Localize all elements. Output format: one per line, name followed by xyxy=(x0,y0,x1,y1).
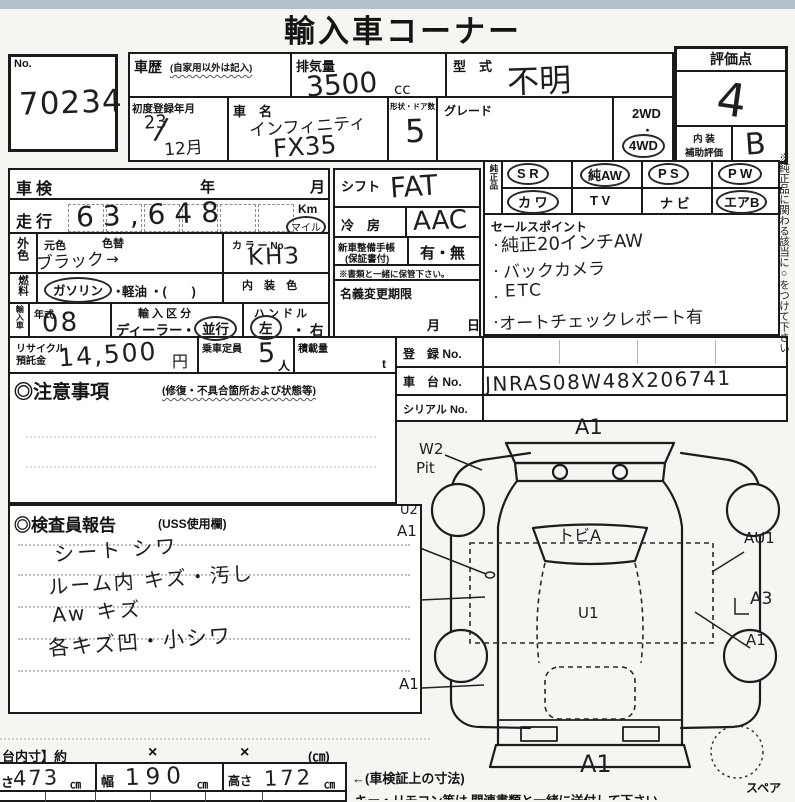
model-code-label: 型 式 xyxy=(453,56,492,75)
service-book-box: 新車整備手帳 (保証書付) 有・無 xyxy=(333,236,481,266)
registration-label-divider xyxy=(482,338,484,420)
right-taillight xyxy=(623,727,659,741)
height-box: 高さ 172 ㎝ xyxy=(222,762,347,792)
doors-label: 形状・ドア数 xyxy=(390,101,435,112)
interior-color-label: 内 装 色 xyxy=(242,277,301,293)
equip-ps: P S xyxy=(658,166,679,181)
equip-aw: 純AW xyxy=(588,168,622,183)
recycle-divider1 xyxy=(197,338,199,372)
color-label: 外色 xyxy=(16,237,29,261)
import-label: 輸入車 xyxy=(15,305,23,329)
history-box: 車歴 (自家用以外は記入) xyxy=(128,52,292,100)
fuel-row: 燃料 ガソリン ・ 軽油 ・( ) 内 装 色 xyxy=(8,272,330,304)
bottom-cut-divider xyxy=(205,792,206,802)
cautions-note: (修復・不具合箇所および状態等) xyxy=(162,383,316,398)
registration-row-divider xyxy=(397,394,786,396)
dims-x1: × xyxy=(148,744,157,762)
interior-grade-label2: 補助評価 xyxy=(677,145,731,159)
shaken-month: 月 xyxy=(310,176,325,197)
import-labelcell: 輸入車 xyxy=(10,304,30,336)
load-label: 積載量 xyxy=(298,340,328,355)
body-right-edge xyxy=(663,481,682,745)
height-label: 高さ xyxy=(228,772,252,789)
ac-label: 冷 房 xyxy=(341,215,380,234)
shift-label: シフト xyxy=(341,176,380,195)
color-arrow: → xyxy=(106,250,119,268)
service-book-divider xyxy=(407,238,409,264)
equipment-label: 純正品 xyxy=(489,164,498,190)
fuel-labelcell: 燃料 xyxy=(10,274,38,302)
diagram-label-u2: U2 xyxy=(400,503,418,518)
transfer-label: 名義変更期限 xyxy=(340,285,412,302)
displacement-value: 3500 xyxy=(305,66,378,104)
recycle-divider2 xyxy=(293,338,295,372)
fuel-diesel: 軽油 xyxy=(122,281,147,300)
doors-dashed-rect xyxy=(470,543,713,643)
first-reg-month: 12月 xyxy=(163,133,203,161)
load-unit: t xyxy=(382,357,386,371)
recycle-label2: 預託金 xyxy=(16,352,46,367)
mileage-row: 走行 63,648 Km マイル xyxy=(8,198,330,234)
length-value: 473 xyxy=(13,765,60,791)
interior-dashed-right xyxy=(635,563,643,663)
import-parallel-ring: 並行 xyxy=(194,316,237,341)
diagram-label-a3: A3 xyxy=(750,589,772,609)
faint-ruling xyxy=(0,738,430,740)
diagram-label-w2: W2 xyxy=(419,440,443,458)
equip-sr: S R xyxy=(517,166,539,181)
color-no-value: KH3 xyxy=(248,243,302,271)
displacement-box: 排気量 3500 cc xyxy=(290,52,447,100)
mileage-km: Km xyxy=(298,202,317,216)
a1-left-pointer-line xyxy=(420,597,485,600)
grade-label: グレード xyxy=(444,102,492,119)
a3-bracket xyxy=(735,598,749,614)
score-value: 4 xyxy=(713,71,750,129)
front-grille xyxy=(515,463,665,481)
mileage-label: 走行 xyxy=(16,208,56,232)
diagram-label-au1: AU1 xyxy=(744,529,775,547)
diagram-label-rear: A1 xyxy=(580,750,612,778)
color-divider xyxy=(222,234,224,272)
fuel-gasoline: ガソリン xyxy=(53,284,103,298)
equipment-col-divider xyxy=(571,162,573,213)
rear-window-dashed xyxy=(545,667,635,719)
score-label: 評価点 xyxy=(710,51,752,67)
score-header: 評価点 xyxy=(677,49,785,72)
sales-point: バックカメラ xyxy=(503,254,606,283)
handle-left: 左 xyxy=(259,321,273,336)
cautions-title: ◎注意事項 xyxy=(14,377,109,404)
diagram-label-a1-right: A1 xyxy=(746,631,766,649)
equip-kawa: カ ワ xyxy=(518,195,548,210)
equip-ps-ring: P S xyxy=(648,163,689,185)
diagram-label-pit: Pit xyxy=(416,459,435,477)
history-note: (自家用以外は記入) xyxy=(170,60,252,74)
registration-box: 登 録 No. 車 台 No. JNRAS08W48X206741 シリアル N… xyxy=(395,336,788,422)
spare-tire-circle xyxy=(711,726,763,778)
transfer-day: 日 xyxy=(467,315,480,334)
width-value: 190 xyxy=(125,763,188,791)
lot-no-label: No. xyxy=(14,58,32,70)
grade-box: グレード xyxy=(436,96,614,162)
base-color-value: ブラック xyxy=(35,245,105,275)
transfer-month: 月 xyxy=(427,315,440,334)
recycle-value: 14,500 xyxy=(57,337,158,373)
color-row: 外色 元色 色替 カ ラ ー No. ブラック → KH3 xyxy=(8,232,330,274)
u2-pointer-line xyxy=(420,548,486,574)
shaken-row: 車検 年 月 xyxy=(8,168,330,200)
history-label: 車歴 xyxy=(134,57,162,77)
import-row: 輸入車 年式 08 輸 入 区 分 ディーラー ・ 並行 ハ ン ド ル 左 ・… xyxy=(8,302,330,338)
sales-points-box: セールスポイント ・ 純正20インチAW ・ バックカメラ ・ ETC ・ オー… xyxy=(483,213,780,336)
equip-aw-ring: 純AW xyxy=(580,163,630,187)
interior-grade-row: 内 装 補助評価 B xyxy=(677,125,785,163)
reg-no-label: 登 録 No. xyxy=(403,345,462,362)
equipment-grid: 純正品 S R 純AW P S P W カ ワ T V ナ ビ エアB xyxy=(483,160,780,215)
shaken-label: 車検 xyxy=(16,175,56,199)
drive-4wd-ring: 4WD xyxy=(622,134,665,158)
reg-no-subcell xyxy=(715,340,716,364)
car-name-line2: FX35 xyxy=(272,130,337,163)
cautions-ruling xyxy=(26,436,376,438)
equip-airbag: エアB xyxy=(724,195,759,210)
equipment-col-divider xyxy=(711,162,713,213)
left-taillight xyxy=(521,727,557,741)
import-divider2 xyxy=(242,304,244,336)
length-box: さ 473 ㎝ xyxy=(0,762,97,792)
shift-box: シフト FAT xyxy=(333,168,481,208)
transfer-box: 名義変更期限 月 日 xyxy=(333,279,481,338)
fuel-gasoline-ring: ガソリン xyxy=(44,277,112,303)
drive-2wd: 2WD xyxy=(632,106,661,121)
chassis-no-label: 車 台 No. xyxy=(403,373,462,390)
doc-dims-note: ←(車検証上の寸法) xyxy=(352,768,465,787)
equip-airbag-ring: エアB xyxy=(716,190,767,214)
lot-no-box: No. 70234 xyxy=(8,54,118,152)
left-front-wheel xyxy=(432,484,484,536)
height-value: 172 xyxy=(264,765,314,791)
dims-x2: × xyxy=(240,744,249,762)
left-rear-wheel xyxy=(435,630,487,682)
inspector-ruling xyxy=(18,670,410,672)
hood-mark xyxy=(486,572,495,578)
doors-value: 5 xyxy=(404,112,426,151)
sales-bullet: ・ xyxy=(491,237,501,252)
inspector-box: ◎検査員報告 (USS使用欄) シート シワ ルーム内 キズ・汚し Aw キズ … xyxy=(8,504,422,714)
bottom-cut-divider xyxy=(45,792,46,802)
interior-grade-value: B xyxy=(744,126,767,162)
right-headlight xyxy=(613,465,627,479)
bottom-cut-divider xyxy=(262,792,263,802)
lot-no-value: 70234 xyxy=(18,83,123,123)
equip-navi: ナ ビ xyxy=(660,193,690,212)
doors-box: 形状・ドア数 5 xyxy=(387,96,438,162)
equip-tv: T V xyxy=(590,193,610,208)
displacement-unit: cc xyxy=(394,80,411,98)
recycle-row: リサイクル 預託金 14,500 円 乗車定員 5 人 積載量 t xyxy=(8,336,397,374)
reg-no-subcell xyxy=(637,340,638,364)
bottom-cut-note: キー・リモコン等は 関連書類と一緒に送付して下さい xyxy=(355,790,775,800)
cautions-ruling xyxy=(26,466,376,468)
equipment-col-divider xyxy=(641,162,643,213)
diagram-label-front: A1 xyxy=(575,415,603,439)
interior-grade-label1: 内 装 xyxy=(677,131,731,145)
bottom-cut-divider xyxy=(95,792,96,802)
first-reg-box: 初度登録年月 23 / 12月 xyxy=(128,96,229,162)
au1-pointer-line xyxy=(712,552,744,572)
ac-box: 冷 房 AAC xyxy=(333,206,481,238)
drive-4wd: 4WD xyxy=(629,138,658,153)
capacity-value: 5 xyxy=(257,338,275,370)
chassis-no-value: JNRAS08W48X206741 xyxy=(485,366,732,396)
import-divider1 xyxy=(110,304,112,336)
diagram-label-windshield-chip: トビA xyxy=(558,522,601,546)
sales-bullet: ・ xyxy=(491,263,501,278)
shift-value: FAT xyxy=(389,168,439,204)
width-box: 幅 190 ㎝ xyxy=(95,762,224,792)
front-bumper xyxy=(506,443,674,463)
sales-bullet: ・ xyxy=(491,289,501,304)
reg-no-subcell xyxy=(559,340,560,364)
interior-grade-labelcell: 内 装 補助評価 xyxy=(677,127,733,163)
car-name-box: 車 名 インフィニティ FX35 xyxy=(227,96,389,162)
recycle-unit: 円 xyxy=(172,348,188,372)
bottom-cut-divider xyxy=(150,792,151,802)
cautions-box: ◎注意事項 (修復・不具合箇所および状態等) xyxy=(8,372,397,504)
capacity-label: 乗車定員 xyxy=(202,340,242,355)
handle-left-ring: 左 xyxy=(250,315,282,340)
bottom-cut-table xyxy=(0,790,347,802)
page-title: 輸入車コーナー xyxy=(248,6,558,51)
fuel-divider xyxy=(222,274,224,302)
model-code-value: 不明 xyxy=(506,55,572,103)
service-book-value: 有・無 xyxy=(420,242,465,263)
body-left-edge xyxy=(498,481,517,745)
ac-divider xyxy=(405,208,407,236)
color-labelcell: 外色 xyxy=(10,234,38,272)
shaken-year: 年 xyxy=(200,176,215,197)
fuel-paren: ・( ) xyxy=(150,281,196,300)
auction-sheet: { "page": { "title": "輸入車コーナー", "side_no… xyxy=(0,0,795,800)
equip-sr-ring: S R xyxy=(507,163,549,185)
ac-value: AAC xyxy=(412,205,467,237)
diagram-label-a1-bottomleft: A1 xyxy=(399,675,419,693)
import-parallel: 並行 xyxy=(202,322,229,337)
left-headlight xyxy=(553,465,567,479)
drive-box: 2WD ・ 4WD xyxy=(612,96,674,162)
interior-dashed-left xyxy=(537,563,545,663)
year-model-value: 08 xyxy=(41,307,79,338)
car-diagram xyxy=(418,415,795,800)
width-label: 幅 xyxy=(101,771,114,790)
model-code-box: 型 式 不明 xyxy=(445,52,674,100)
sales-point: 純正20インチAW xyxy=(501,227,644,258)
mileage-value: 63,648 xyxy=(75,195,228,233)
inspector-line: Aw キズ xyxy=(51,593,143,628)
score-box: 評価点 4 内 装 補助評価 B xyxy=(674,46,788,164)
sales-point: ETC xyxy=(505,280,544,301)
color-change-label: 色替 xyxy=(102,235,124,251)
equip-pw-ring: P W xyxy=(718,163,762,185)
equip-kawa-ring: カ ワ xyxy=(507,190,559,214)
side-note: ※純正品に関わる該当に○をつけて下さい xyxy=(778,152,789,432)
diagram-label-a1-hood: A1 xyxy=(397,522,417,540)
sales-point: オートチェックレポート有 xyxy=(499,302,704,334)
equip-pw: P W xyxy=(728,166,752,181)
service-book-note: (保証書付) xyxy=(345,251,389,265)
fuel-label: 燃料 xyxy=(17,275,28,296)
diagram-label-u1: U1 xyxy=(578,604,599,622)
a1-bottomleft-pointer-line xyxy=(422,685,484,688)
inspector-title: ◎検査員報告 xyxy=(14,511,116,536)
